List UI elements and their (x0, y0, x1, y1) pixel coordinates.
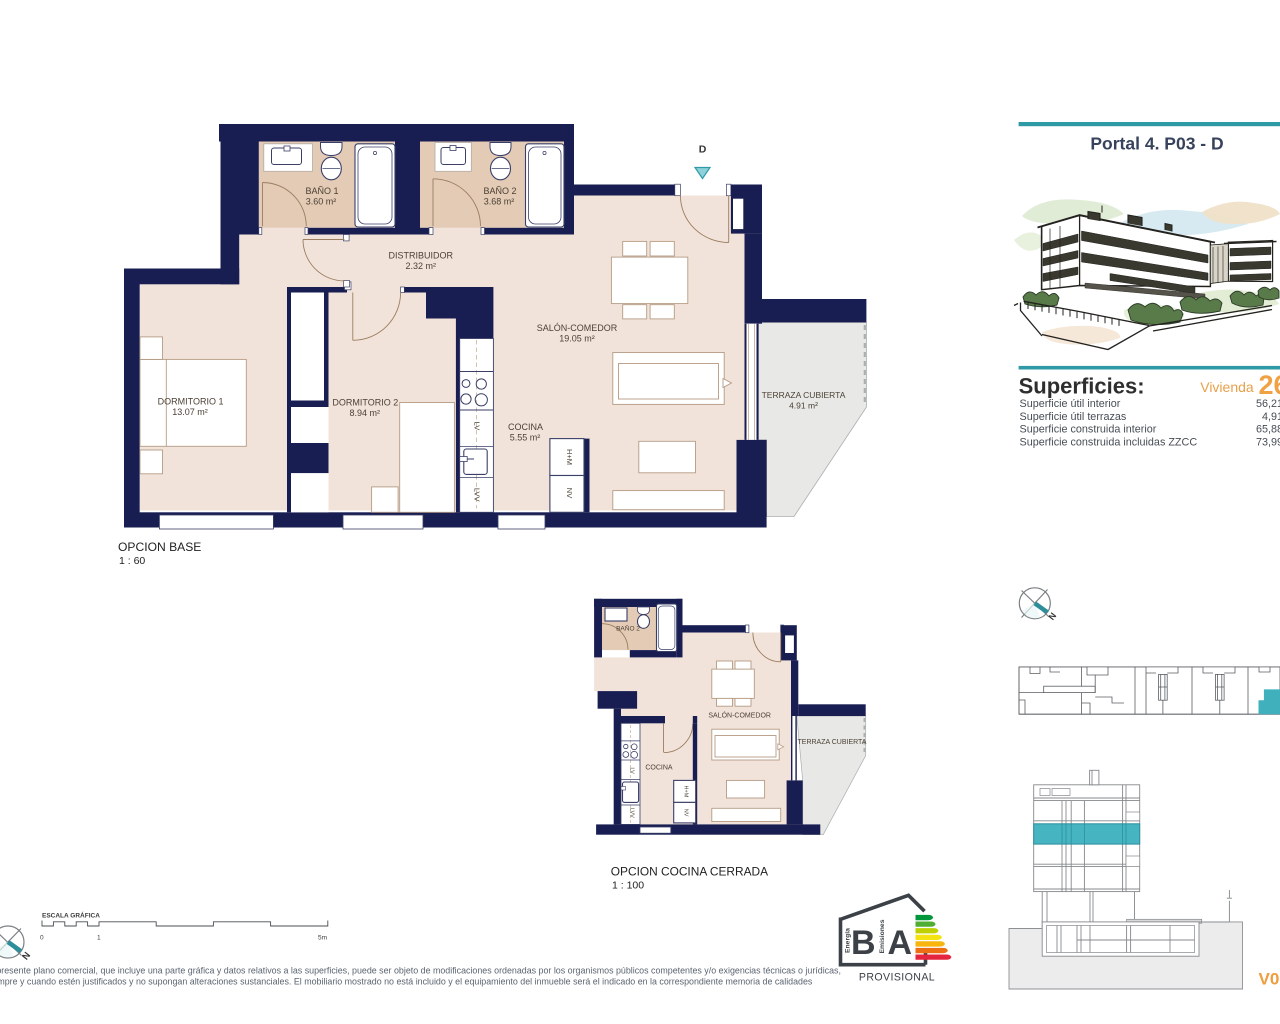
svg-text:1 : 60: 1 : 60 (119, 555, 145, 567)
svg-text:TERRAZA CUBIERTA: TERRAZA CUBIERTA (762, 390, 846, 400)
svg-text:COCINA: COCINA (508, 422, 543, 432)
svg-text:A: A (888, 924, 913, 962)
svg-text:H+M: H+M (683, 786, 689, 798)
svg-text:56,21: 56,21 (1256, 398, 1280, 410)
svg-text:5m: 5m (318, 935, 327, 942)
svg-text:Portal 4. P03 - D: Portal 4. P03 - D (1090, 134, 1223, 154)
svg-text:H+M: H+M (565, 449, 574, 465)
svg-text:OPCION BASE: OPCION BASE (118, 540, 201, 554)
svg-text:DISTRIBUIDOR: DISTRIBUIDOR (389, 251, 454, 261)
svg-text:LV: LV (473, 422, 482, 431)
svg-text:BAÑO 2: BAÑO 2 (483, 186, 516, 196)
svg-text:1 : 100: 1 : 100 (612, 880, 644, 892)
svg-text:Energía: Energía (845, 928, 852, 953)
svg-text:65,88: 65,88 (1256, 424, 1280, 436)
svg-text:Superficies:: Superficies: (1019, 374, 1145, 399)
svg-text:73,99: 73,99 (1256, 436, 1280, 448)
svg-text:V01: V01 (1259, 970, 1280, 989)
svg-text:SALÓN-COMEDOR: SALÓN-COMEDOR (537, 323, 618, 333)
svg-text:COCINA: COCINA (645, 765, 673, 772)
svg-text:BAÑO 2: BAÑO 2 (616, 624, 640, 633)
svg-text:4.91 m²: 4.91 m² (789, 401, 818, 411)
svg-text:NV: NV (565, 488, 574, 498)
svg-text:26: 26 (1259, 370, 1280, 400)
svg-text:SALÓN-COMEDOR: SALÓN-COMEDOR (708, 711, 771, 720)
svg-text:siempre y cuando estén justifi: siempre y cuando estén justificados y no… (0, 977, 813, 987)
svg-text:El presente plano comercial, q: El presente plano comercial, que incluye… (0, 966, 841, 976)
svg-text:Superficie útil interior: Superficie útil interior (1020, 398, 1121, 410)
svg-text:ESCALA GRÁFICA: ESCALA GRÁFICA (42, 911, 100, 920)
svg-text:8.94 m²: 8.94 m² (349, 408, 380, 418)
svg-text:LVV: LVV (628, 808, 634, 818)
svg-text:1: 1 (97, 935, 101, 942)
svg-text:LVV: LVV (473, 488, 482, 502)
svg-text:Superficie construida interior: Superficie construida interior (1020, 424, 1157, 436)
svg-text:TERRAZA CUBIERTA: TERRAZA CUBIERTA (798, 739, 867, 746)
svg-text:D: D (699, 144, 707, 156)
svg-text:BAÑO 1: BAÑO 1 (305, 186, 338, 196)
svg-text:0: 0 (40, 935, 44, 942)
svg-text:3.68 m²: 3.68 m² (484, 197, 515, 207)
svg-text:PROVISIONAL: PROVISIONAL (859, 972, 935, 984)
svg-text:Emisiones: Emisiones (879, 919, 886, 953)
svg-text:Vivienda: Vivienda (1200, 379, 1254, 395)
svg-text:Superficie construida incluida: Superficie construida incluidas ZZCC (1020, 436, 1198, 448)
svg-text:B: B (851, 924, 876, 962)
svg-text:13.07 m²: 13.07 m² (172, 407, 208, 417)
svg-text:5.55 m²: 5.55 m² (510, 433, 541, 443)
svg-text:NV: NV (683, 809, 689, 817)
svg-text:Superficie útil terrazas: Superficie útil terrazas (1020, 411, 1127, 423)
svg-text:LV: LV (628, 767, 634, 774)
svg-text:19.05 m²: 19.05 m² (559, 334, 595, 344)
svg-text:DORMITORIO 2: DORMITORIO 2 (332, 398, 398, 408)
svg-text:DORMITORIO 1: DORMITORIO 1 (158, 397, 224, 407)
svg-text:OPCION COCINA CERRADA: OPCION COCINA CERRADA (611, 865, 768, 879)
svg-text:4,91: 4,91 (1262, 411, 1280, 423)
svg-text:3.60 m²: 3.60 m² (306, 197, 337, 207)
svg-text:2.32 m²: 2.32 m² (406, 261, 437, 271)
